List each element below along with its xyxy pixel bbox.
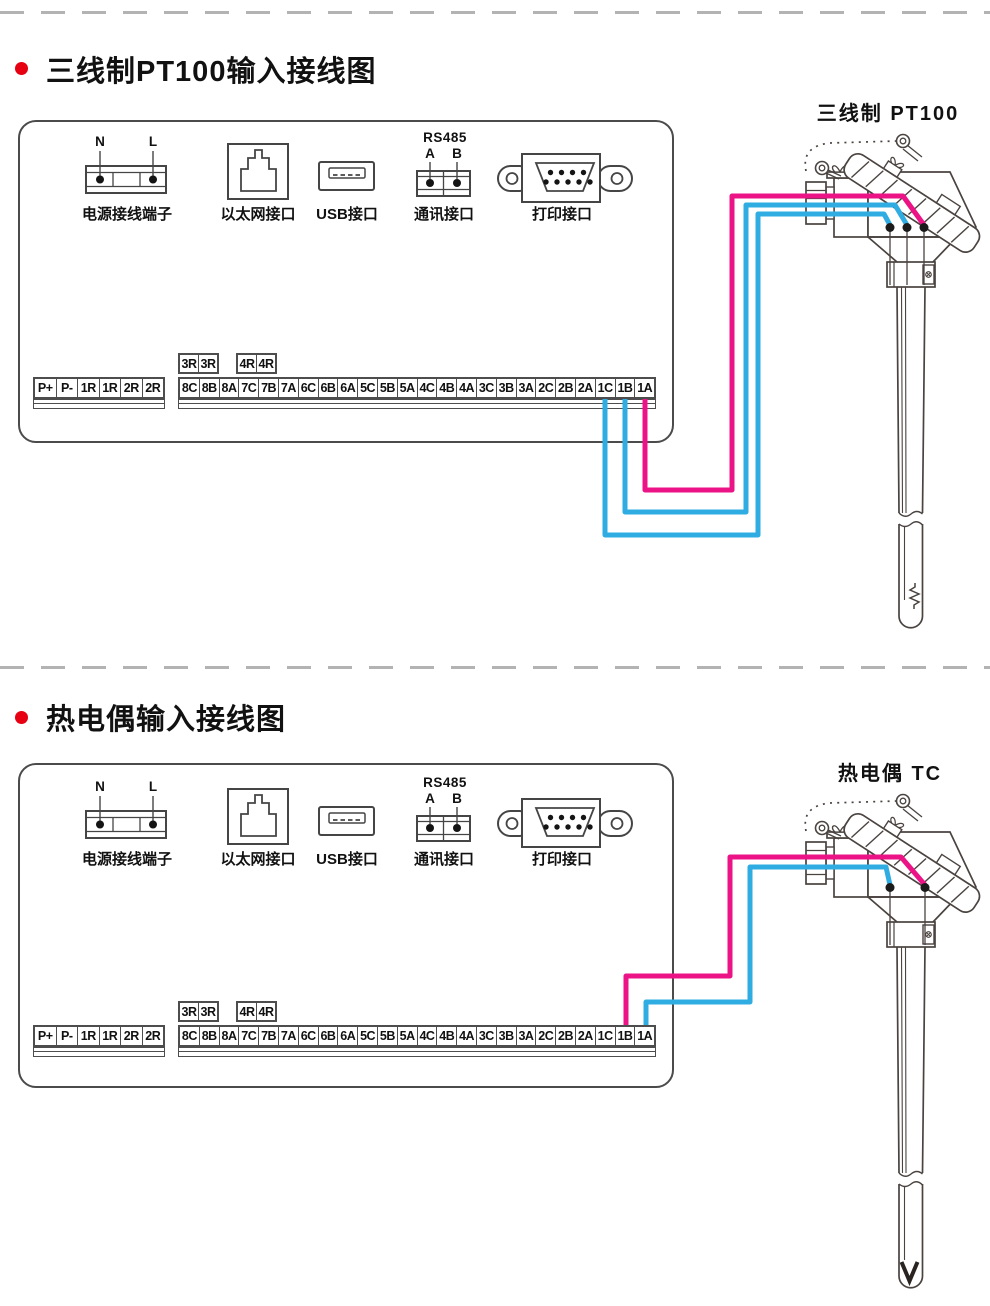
terminal-cell: 5C — [357, 379, 377, 397]
terminal-base-strip — [33, 1047, 165, 1057]
power-pin-l-label: L — [149, 134, 157, 149]
head-terminal-leads — [890, 230, 924, 285]
power-pin-n-label: N — [95, 779, 105, 794]
terminal-cell: 2C — [535, 1027, 555, 1045]
terminal-cell: 2B — [555, 379, 575, 397]
terminal-cell: 8C — [180, 1027, 199, 1045]
terminal-cell: 5B — [377, 379, 397, 397]
terminal-cell: 4R — [238, 1003, 256, 1020]
relay-terminal-3r: 3R3R — [178, 353, 219, 374]
input-terminal-strip: 8C8B8A7C7B7A6C6B6A5C5B5A4C4B4A3C3B3A2C2B… — [178, 1025, 656, 1047]
terminal-base-strip — [178, 1047, 656, 1057]
terminal-cell: 1R — [77, 379, 99, 397]
terminal-cell: 6C — [298, 1027, 318, 1045]
terminal-cell: 3R — [198, 355, 217, 372]
bullet-icon — [15, 62, 28, 75]
rs485-pin-b-label: B — [452, 791, 462, 806]
terminal-cell: 6A — [337, 1027, 357, 1045]
head-terminal-leads — [890, 890, 925, 945]
terminal-cell: 1R — [99, 1027, 121, 1045]
terminal-cell: 1B — [615, 379, 635, 397]
rs485-heading: RS485 — [423, 130, 467, 145]
terminal-cell: 3A — [516, 379, 536, 397]
terminal-cell: 3R — [180, 355, 198, 372]
terminal-cell: 6B — [318, 1027, 338, 1045]
terminal-cell: 8B — [199, 379, 219, 397]
terminal-cell: 6A — [337, 379, 357, 397]
dashed-divider-middle — [0, 666, 990, 669]
terminal-cell: 7B — [258, 1027, 278, 1045]
section1-title: 三线制PT100输入接线图 — [46, 48, 376, 90]
terminal-cell: 8C — [180, 379, 199, 397]
head-terminal-dots — [886, 223, 929, 232]
terminal-cell: 2C — [535, 379, 555, 397]
power-port-caption: 电源接线端子 — [52, 203, 202, 224]
printer-port-caption: 打印接口 — [487, 203, 637, 224]
terminal-cell: 3B — [496, 1027, 516, 1045]
terminal-cell: 8A — [219, 1027, 239, 1045]
terminal-cell: 3A — [516, 1027, 536, 1045]
terminal-cell: P+ — [35, 1027, 56, 1045]
terminal-base-strip — [33, 399, 165, 409]
sensor1-label: 三线制 PT100 — [817, 97, 959, 126]
terminal-cell: 1A — [634, 379, 654, 397]
terminal-cell: 3R — [180, 1003, 198, 1020]
terminal-cell: 1C — [595, 379, 615, 397]
terminal-cell: 3R — [198, 1003, 217, 1020]
relay-terminal-3r: 3R3R — [178, 1001, 219, 1022]
terminal-cell: 2B — [555, 1027, 575, 1045]
power-relay-terminal-strip: P+P-1R1R2R2R — [33, 377, 165, 399]
rs485-pin-a-label: A — [425, 146, 435, 161]
terminal-cell: 8B — [199, 1027, 219, 1045]
printer-port-caption: 打印接口 — [487, 848, 637, 869]
terminal-cell: 7B — [258, 379, 278, 397]
relay-terminal-4r: 4R4R — [236, 1001, 277, 1022]
rs485-pin-b-label: B — [452, 146, 462, 161]
terminal-cell: 1R — [77, 1027, 99, 1045]
terminal-cell: 4R — [256, 1003, 275, 1020]
terminal-cell: 2A — [575, 379, 595, 397]
terminal-cell: 2R — [142, 1027, 164, 1045]
terminal-cell: 7C — [238, 1027, 258, 1045]
terminal-cell: 4R — [256, 355, 275, 372]
terminal-cell: 3B — [496, 379, 516, 397]
head-terminal-dots — [886, 883, 930, 892]
tc-sensor-drawing — [805, 795, 990, 1288]
terminal-cell: 4C — [417, 1027, 437, 1045]
terminal-cell: 4A — [456, 379, 476, 397]
rtd-element-symbol — [910, 583, 919, 609]
terminal-cell: 3C — [476, 379, 496, 397]
terminal-cell: P- — [56, 379, 78, 397]
terminal-cell: 1B — [615, 1027, 635, 1045]
input-terminal-strip: 8C8B8A7C7B7A6C6B6A5C5B5A4C4B4A3C3B3A2C2B… — [178, 377, 656, 399]
terminal-cell: P+ — [35, 379, 56, 397]
terminal-cell: 6C — [298, 379, 318, 397]
terminal-cell: 1C — [595, 1027, 615, 1045]
terminal-cell: 2R — [120, 379, 142, 397]
sensor2-label: 热电偶 TC — [838, 757, 942, 786]
terminal-cell: 7A — [278, 379, 298, 397]
terminal-cell: 2R — [120, 1027, 142, 1045]
terminal-cell: 5A — [397, 379, 417, 397]
terminal-cell: 5A — [397, 1027, 417, 1045]
terminal-cell: 6B — [318, 379, 338, 397]
pt100-sensor-drawing — [805, 135, 990, 628]
terminal-cell: 1R — [99, 379, 121, 397]
terminal-cell: 5B — [377, 1027, 397, 1045]
terminal-base-strip — [178, 399, 656, 409]
relay-terminal-4r: 4R4R — [236, 353, 277, 374]
thermocouple-junction-symbol — [902, 1262, 918, 1281]
section2-title: 热电偶输入接线图 — [46, 696, 286, 738]
terminal-cell: 1A — [634, 1027, 654, 1045]
terminal-cell: 8A — [219, 379, 239, 397]
power-port-caption: 电源接线端子 — [52, 848, 202, 869]
rs485-heading: RS485 — [423, 775, 467, 790]
terminal-cell: 4B — [436, 1027, 456, 1045]
wire-1a-pink — [645, 196, 924, 490]
power-pin-l-label: L — [149, 779, 157, 794]
terminal-cell: 3C — [476, 1027, 496, 1045]
dashed-divider-top — [0, 11, 990, 14]
terminal-cell: 5C — [357, 1027, 377, 1045]
terminal-cell: 4A — [456, 1027, 476, 1045]
power-pin-n-label: N — [95, 134, 105, 149]
terminal-cell: 7C — [238, 379, 258, 397]
terminal-cell: 2R — [142, 379, 164, 397]
terminal-cell: 4R — [238, 355, 256, 372]
terminal-cell: 4C — [417, 379, 437, 397]
wire-1a-blue — [646, 867, 890, 1025]
terminal-cell: 7A — [278, 1027, 298, 1045]
terminal-cell: 2A — [575, 1027, 595, 1045]
bullet-icon — [15, 711, 28, 724]
manual-page: 三线制PT100输入接线图 N L RS485 A B 电源接线端子 以太网接口… — [0, 0, 990, 1306]
terminal-cell: P- — [56, 1027, 78, 1045]
terminal-cell: 4B — [436, 379, 456, 397]
rs485-pin-a-label: A — [425, 791, 435, 806]
power-relay-terminal-strip: P+P-1R1R2R2R — [33, 1025, 165, 1047]
